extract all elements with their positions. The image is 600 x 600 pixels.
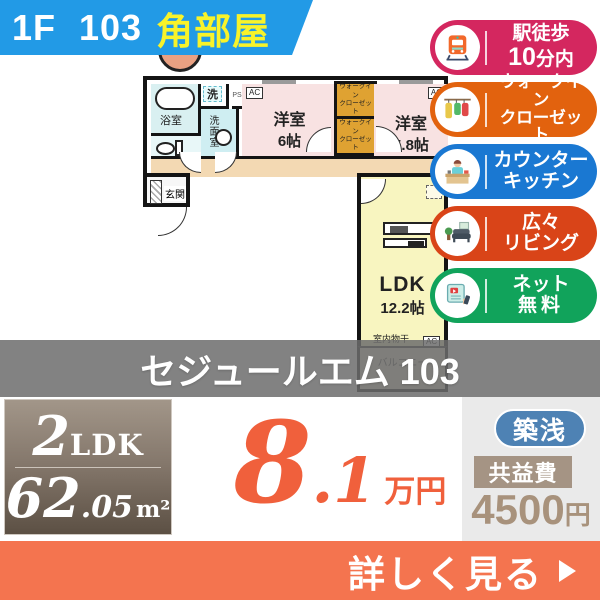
badge-separator [485, 217, 487, 251]
layout-area-box: 2 LDK 62 .05 m² [4, 399, 172, 535]
rent-unit: 万円 [384, 476, 446, 507]
entrance-area: 玄関 [143, 173, 190, 207]
walkin-closet-1: ウォークイン クローゼット [334, 81, 377, 119]
bathroom-label: 浴室 [160, 115, 182, 128]
rent-int: 8 [234, 408, 312, 520]
wic-label: ウォークイン [337, 119, 374, 136]
badge-counter-kitchen: カウンター キッチン [430, 144, 597, 199]
area-dec: .05 [81, 493, 133, 523]
fee-label: 共益費 [474, 456, 572, 488]
area-int: 62 [6, 471, 81, 525]
western1-size: 6帖 [278, 130, 301, 151]
badge-text: カウンター キッチン [493, 151, 597, 192]
age-badge: 築浅 [494, 409, 586, 448]
building-name: セジュールエム 103 [140, 343, 460, 395]
badge-text: 駅徒歩 10分内 [493, 24, 597, 72]
washer-label: 洗 [203, 86, 222, 102]
toilet-icon [156, 142, 175, 155]
badge-station-walk: 駅徒歩 10分内 [430, 20, 597, 75]
wic-label: ウォークイン [337, 83, 374, 100]
age-badge-label: 築浅 [513, 411, 567, 447]
unit-number: 1F 103 [12, 7, 142, 49]
unit-banner: 1F 103 角部屋 [0, 0, 313, 55]
area-unit: m² [136, 498, 170, 521]
divider [15, 467, 161, 468]
area-row: 62 .05 m² [6, 471, 171, 525]
room-bathroom: 浴室 [151, 84, 201, 133]
arrow-right-icon [559, 560, 576, 582]
badge-separator [485, 155, 487, 189]
rent-price: 8 .1 万円 [212, 408, 468, 538]
walkin-closet-icon [435, 87, 480, 132]
badge-separator [485, 93, 487, 127]
room-washroom: 洗面室 [201, 109, 239, 156]
fee-unit: 円 [565, 500, 591, 530]
details-button-label: 詳しく見る [348, 544, 543, 598]
train-icon [435, 25, 480, 70]
badge-walkin-closet: ウォークイン クローゼット [430, 82, 597, 137]
ac-label: AC [246, 87, 263, 99]
badge-spacious-living: 広々 リビング [430, 206, 597, 261]
kitchen-counter-icon [383, 238, 427, 248]
fee-value: 4500円 [462, 489, 600, 531]
free-internet-icon [435, 273, 480, 318]
badge-text: 広々 リビング [493, 213, 597, 254]
badge-free-internet: ネット 無料 [430, 268, 597, 323]
layout-number: 2 [32, 409, 70, 463]
entry-door-arc [158, 207, 187, 236]
fee-amount: 4500 [471, 486, 564, 533]
counter-kitchen-icon [435, 149, 480, 194]
details-button[interactable]: 詳しく見る [0, 541, 600, 600]
living-sofa-icon [435, 211, 480, 256]
rent-dec: .1 [312, 450, 377, 512]
ldk-size: 12.2帖 [380, 297, 424, 318]
wic-label: クローゼット [337, 136, 374, 153]
badge-text: ウォークイン クローゼット [493, 74, 597, 145]
bathtub-icon [155, 87, 195, 110]
listing-card: 浴室 洗 PS 洗面室 AC 洋室 6帖 ウ [0, 0, 600, 600]
title-band: セジュールエム 103 [0, 340, 600, 397]
walkin-closet-2: ウォークイン クローゼット [334, 116, 377, 156]
corner-room-label: 角部屋 [156, 1, 270, 55]
entrance-label: 玄関 [164, 186, 186, 201]
layout-word: LDK [70, 431, 144, 460]
badge-text: ネット 無料 [493, 275, 597, 316]
western1-name: 洋室 [273, 106, 305, 130]
ldk-name: LDK [379, 273, 425, 297]
layout-row: 2 LDK [32, 409, 143, 463]
badge-separator [485, 31, 487, 65]
shoe-cabinet-icon [150, 180, 162, 204]
pipe-space-label: PS [232, 84, 242, 109]
wic-label: クローゼット [337, 100, 374, 117]
western2-name: 洋室 [395, 110, 427, 134]
badge-separator [485, 279, 487, 313]
room-laundry: 洗 [201, 84, 229, 109]
sink-icon [215, 129, 232, 146]
